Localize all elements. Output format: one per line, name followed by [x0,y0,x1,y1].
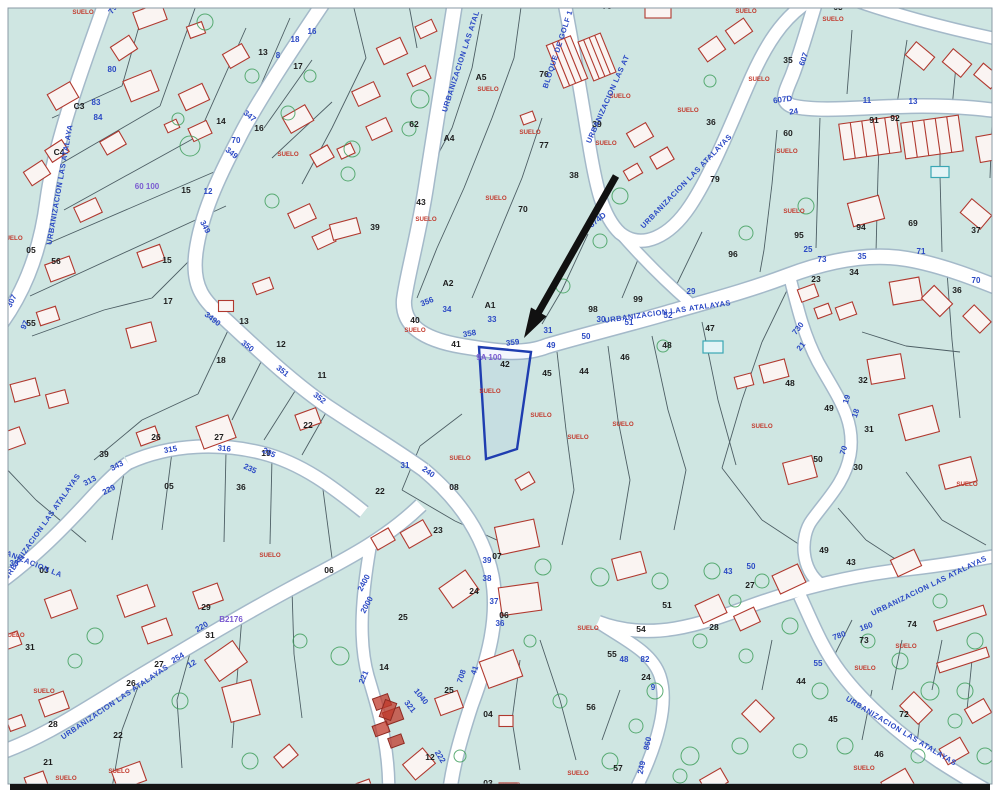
land-use-label: SUELO [854,665,876,672]
parcel-number: 14 [379,662,389,672]
parcel-number: 55 [607,649,617,659]
land-use-label: SUELO [612,421,634,428]
parcel-number: C3 [74,101,85,111]
parcel-number: 23 [811,274,821,284]
parcel-number: 08 [449,482,459,492]
parcel-number: 62 [409,119,419,129]
parcel-number: 11 [318,370,327,380]
parcel-number: 74 [907,619,917,629]
parcel-number: 05 [164,481,174,491]
building-footprint [499,716,513,727]
parcel-number: 44 [796,676,806,686]
road-number: 34 [443,305,452,314]
parcel-number: 44 [579,366,589,376]
scan-bottom-bar [10,784,990,790]
road-number: 31 [544,326,553,335]
parcel-number: 24 [641,672,651,682]
cadastral-ref: 60 100 [135,182,160,191]
land-use-label: SUELO [530,412,552,419]
road-number: 70 [232,136,241,145]
parcel-number: 07 [492,551,502,561]
parcel-number: 60 [783,128,793,138]
parcel-number: 39 [370,222,380,232]
parcel-number: 50 [813,454,823,464]
parcel-number: 25 [444,685,454,695]
parcel-number: 49 [824,403,834,413]
parcel-number: 43 [416,197,426,207]
parcel-number: 95 [794,230,804,240]
road-number: 73 [818,255,827,264]
land-use-label: SUELO [956,481,978,488]
land-use-label: SUELO [259,552,281,559]
parcel-number: 49 [819,545,829,555]
road-number: 18 [291,35,300,44]
parcel-number: 36 [236,482,246,492]
land-use-label: SUELO [735,8,757,15]
parcel-number: 36 [952,285,962,295]
land-use-label: SUELO [677,107,699,114]
parcel-number: 37 [971,225,981,235]
road-number: 8 [276,51,281,60]
land-use-label: SUELO [277,151,299,158]
parcel-number: 21 [43,757,53,767]
map-canvas: SUELOSUELOSUELOSUELOSUELOSUELOSUELOSUELO… [0,0,1000,800]
parcel-number: 96 [728,249,738,259]
parcel-number: 56 [586,702,596,712]
pool-icon [703,341,723,353]
parcel-number: 26 [151,432,161,442]
land-use-label: SUELO [485,195,507,202]
cadastral-ref: 9A 100 [476,353,502,362]
parcel-number: 72 [899,709,909,719]
parcel-number: 13 [258,47,268,57]
road-number: 31 [401,461,410,470]
road-number: 11 [863,96,872,105]
parcel-number: 23 [433,525,443,535]
building-footprint [219,301,234,312]
cadastral-map: SUELOSUELOSUELOSUELOSUELOSUELOSUELOSUELO… [0,0,1000,800]
parcel-number: 22 [113,730,123,740]
land-use-label: SUELO [577,625,599,632]
parcel-number: 06 [324,565,334,575]
parcel-number: 15 [181,185,191,195]
building-footprint [867,354,905,385]
parcel-number: 51 [662,600,672,610]
parcel-number: 45 [542,368,552,378]
land-use-label: SUELO [55,775,77,782]
parcel-number: A5 [476,72,487,82]
parcel-number: A2 [443,278,454,288]
land-use-label: SUELO [3,632,25,639]
road-number: 80 [108,65,117,74]
land-use-label: SUELO [449,455,471,462]
road-number: 25 [804,245,813,254]
parcel-number: 22 [375,486,385,496]
parcel-number: 47 [705,323,715,333]
land-use-label: SUELO [751,423,773,430]
parcel-number: 69 [908,218,918,228]
land-use-label: SUELO [415,216,437,223]
land-use-label: SUELO [108,768,130,775]
parcel-number: 46 [620,352,630,362]
road-number: 39 [483,556,492,565]
road-number: 43 [724,567,733,576]
land-use-label: SUELO [895,643,917,650]
road-number: 49 [547,341,556,350]
road-number: 35 [858,252,867,261]
land-use-label: SUELO [853,765,875,772]
road-number: 36 [496,619,505,628]
road-number: 82 [641,655,650,664]
parcel-number: 27 [745,580,755,590]
road-number: 84 [94,113,103,122]
road-number: 50 [747,562,756,571]
cadastral-ref: B2176 [219,615,243,624]
parcel-number: 13 [239,316,249,326]
road-number: 359 [505,337,520,348]
parcel-number: 73 [859,635,869,645]
land-use-label: SUELO [477,86,499,93]
parcel-number: 28 [48,719,58,729]
land-use-label: SUELO [72,9,94,16]
terraced-houses [901,115,963,159]
parcel-number: A1 [485,300,496,310]
parcel-number: 91 [869,115,879,125]
parcel-number: 17 [293,61,303,71]
parcel-number: 92 [890,113,900,123]
parcel-number: 04 [483,709,493,719]
parcel-number: 31 [864,424,874,434]
parcel-number: 17 [163,296,173,306]
land-use-label: SUELO [567,434,589,441]
parcel-number: 31 [205,630,215,640]
road-number: 13 [909,97,918,106]
parcel-number: 30 [853,462,863,472]
parcel-number: 63 [833,2,843,12]
land-use-label: SUELO [519,129,541,136]
road-number: 16 [308,27,317,36]
parcel-number: 39 [99,449,109,459]
parcel-number: 98 [588,304,598,314]
land-use-label: SUELO [822,16,844,23]
parcel-number: 34 [849,267,859,277]
land-use-label: SUELO [404,327,426,334]
parcel-number: 54 [636,624,646,634]
parcel-number: 79 [710,174,720,184]
building-footprint [645,4,671,18]
parcel-number: 16 [254,123,264,133]
parcel-number: 12 [276,339,286,349]
parcel-number: 29 [201,602,211,612]
parcel-number: 43 [846,557,856,567]
parcel-number: 25 [398,612,408,622]
land-use-label: SUELO [33,688,55,695]
parcel-number: 14 [216,116,226,126]
parcel-number: 41 [451,339,461,349]
parcel-number: 70 [518,204,528,214]
parcel-number: 27 [214,432,224,442]
road-number: 50 [582,332,591,341]
pool-icon [931,167,949,178]
road-number: 38 [483,574,492,583]
parcel-number: 48 [662,340,672,350]
road-number: 24 [789,106,800,116]
parcel-number: 28 [709,622,719,632]
parcel-number: 38 [569,170,579,180]
road-number: 9 [651,683,656,692]
parcel-number: 57 [613,763,623,773]
parcel-number: 22 [303,420,313,430]
land-use-label: SUELO [567,770,589,777]
parcel-number: 56 [51,256,61,266]
parcel-number: 48 [785,378,795,388]
parcel-number: 24 [469,586,479,596]
parcel-number: 45 [828,714,838,724]
land-use-label: SUELO [748,76,770,83]
road-number: 33 [488,315,497,324]
parcel-number: 77 [539,140,549,150]
land-use-label: SUELO [595,140,617,147]
land-use-label: SUELO [479,388,501,395]
parcel-number: 15 [162,255,172,265]
parcel-number: 05 [26,245,36,255]
road-number: 55 [814,659,823,668]
parcel-number: 32 [858,375,868,385]
road-number: 48 [620,655,629,664]
land-use-label: SUELO [783,208,805,215]
land-use-label: SUELO [1,235,23,242]
road-number: 70 [972,276,981,285]
parcel-number: 35 [783,55,793,65]
road-number: 12 [204,187,213,196]
road-number: 29 [687,287,696,296]
building-footprint [976,133,1000,162]
road-number: 316 [217,443,232,453]
road-number: 71 [917,247,926,256]
parcel-number: 75 [602,1,612,11]
parcel-number: 31 [25,642,35,652]
parcel-number: 94 [856,222,866,232]
road-number: 37 [490,597,499,606]
land-use-label: SUELO [776,148,798,155]
road-number: 83 [92,98,101,107]
building-footprint [901,115,963,159]
parcel-number: 40 [410,315,420,325]
parcel-number: 18 [216,355,226,365]
parcel-line [992,70,997,114]
building-footprint [889,277,923,305]
cadastral-map-page: SUELOSUELOSUELOSUELOSUELOSUELOSUELOSUELO… [0,0,1000,800]
parcel-number: 36 [706,117,716,127]
parcel-number: 46 [874,749,884,759]
parcel-number: 99 [633,294,643,304]
parcel-number: A4 [444,133,455,143]
